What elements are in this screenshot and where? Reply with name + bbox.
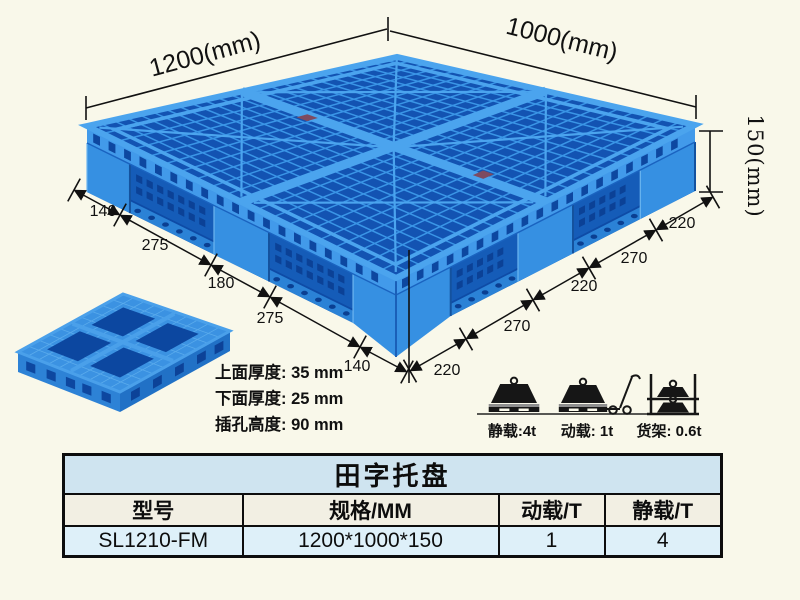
pallet-spec-sheet: 1200(mm) 1000(mm) 150(mm) 140 275 180 27… xyxy=(0,0,800,600)
dynamic-load-label: 动载: 1t xyxy=(561,422,614,440)
note-fork-slot-height: 插孔高度: 90 mm xyxy=(215,414,343,434)
dim-right-seg-2: 220 xyxy=(571,278,598,295)
pallet-runner-hole xyxy=(301,291,308,295)
pallet-runner-hole xyxy=(509,276,516,280)
mini-pallet-slot xyxy=(569,409,579,412)
load-capacity-icons xyxy=(477,374,699,414)
pallet-runner-hole xyxy=(604,228,611,232)
weight-handle-icon xyxy=(670,381,676,387)
mini-pallet-icon xyxy=(559,407,607,412)
pallet-runner-hole xyxy=(315,298,322,302)
spec-table-data-row: SL1210-FM 1200*1000*150 1 4 xyxy=(64,526,722,557)
handtruck-wheel-icon xyxy=(623,406,631,414)
pallet-runner-hole xyxy=(343,311,350,315)
dim-left-seg-1: 275 xyxy=(142,237,169,254)
pallet-runner-hole xyxy=(176,229,183,233)
dim-left-seg-2: 180 xyxy=(208,275,235,292)
pallet-runner-hole xyxy=(134,209,141,213)
spec-table-title-row: 田字托盘 xyxy=(64,455,722,495)
pallet-diagram: 1200(mm) 1000(mm) 150(mm) 140 275 180 27… xyxy=(0,0,800,450)
thickness-notes: 上面厚度: 35 mm 下面厚度: 25 mm 插孔高度: 90 mm xyxy=(215,362,343,434)
static-load-label: 静载:4t xyxy=(488,422,536,440)
load-icon-labels: 静载:4t 动载: 1t 货架: 0.6t xyxy=(488,422,702,440)
pallet-runner-hole xyxy=(204,243,211,247)
weight-handle-icon xyxy=(580,379,586,385)
dim-length-label: 1200(mm) xyxy=(146,26,263,83)
dim-right-seg-1: 270 xyxy=(504,318,531,335)
pallet-runner-hole xyxy=(148,216,155,220)
pallet-runner-hole xyxy=(455,304,462,308)
pallet-runner-hole xyxy=(468,297,475,301)
mini-pallet-icon xyxy=(489,407,540,412)
mini-pallet-icon xyxy=(489,404,540,407)
pallet-runner-hole xyxy=(273,277,280,281)
pallet-runner-hole xyxy=(617,221,624,225)
dim-right-seg-0: 220 xyxy=(434,362,461,379)
spec-table: 田字托盘 型号 规格/MM 动载/T 静载/T SL1210-FM 1200*1… xyxy=(62,453,723,558)
note-bottom-thickness: 下面厚度: 25 mm xyxy=(215,388,343,408)
handtruck-frame-icon xyxy=(620,377,632,408)
value-dynamic-load: 1 xyxy=(499,526,605,557)
pallet-deck-top xyxy=(87,57,695,278)
pallet-runner-hole xyxy=(287,284,294,288)
pallet-runner-hole xyxy=(591,235,598,239)
mini-pallet-slot xyxy=(499,409,509,412)
pallet-runner-hole xyxy=(482,290,489,294)
pallet-runner-hole xyxy=(495,283,502,287)
dim-left-seg-4: 140 xyxy=(344,358,371,375)
spec-table-header-row: 型号 规格/MM 动载/T 静载/T xyxy=(64,494,722,526)
mini-pallet-slot xyxy=(519,409,529,412)
header-static-load: 静载/T xyxy=(605,494,722,526)
pallet-bottom-view xyxy=(18,294,230,412)
note-top-thickness: 上面厚度: 35 mm xyxy=(215,362,343,382)
pallet-runner-hole xyxy=(190,236,197,240)
weight-block-icon xyxy=(657,403,689,413)
mini-pallet-icon xyxy=(559,404,607,407)
dim-right-seg-3: 270 xyxy=(621,250,648,267)
mini-pallet-slot xyxy=(587,409,597,412)
spec-table-title: 田字托盘 xyxy=(64,455,722,495)
dim-right-seg-4: 220 xyxy=(669,215,696,232)
value-static-load: 4 xyxy=(605,526,722,557)
header-spec: 规格/MM xyxy=(243,494,499,526)
spec-table-container: 田字托盘 型号 规格/MM 动载/T 静载/T SL1210-FM 1200*1… xyxy=(62,453,723,558)
dim-width-label: 1000(mm) xyxy=(503,12,620,67)
pallet-runner-hole xyxy=(329,305,336,309)
dim-left-seg-0: 140 xyxy=(90,203,117,220)
weight-block-icon xyxy=(491,384,537,403)
pallet-runner-hole xyxy=(162,222,169,226)
header-model: 型号 xyxy=(64,494,243,526)
rack-load-label: 货架: 0.6t xyxy=(636,422,701,440)
value-spec: 1200*1000*150 xyxy=(243,526,499,557)
dim-left-seg-3: 275 xyxy=(257,310,284,327)
weight-handle-icon xyxy=(511,378,517,384)
value-model: SL1210-FM xyxy=(64,526,243,557)
header-dynamic-load: 动载/T xyxy=(499,494,605,526)
pallet-runner-hole xyxy=(631,214,638,218)
dim-height-label: 150(mm) xyxy=(743,114,767,217)
pallet-runner-hole xyxy=(577,241,584,245)
weight-block-icon xyxy=(561,385,605,403)
